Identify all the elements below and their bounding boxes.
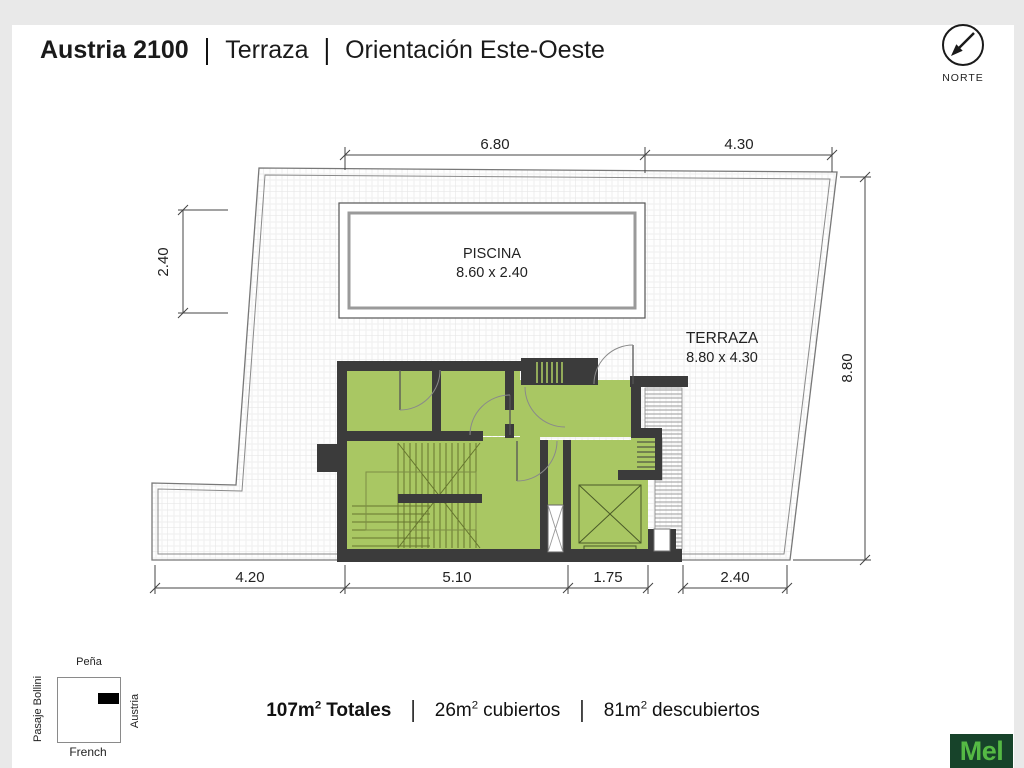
floor-plan-svg: PISCINA 8.60 x 2.40 <box>0 0 1024 768</box>
rear-door <box>654 529 670 551</box>
dim-top-2: 4.30 <box>724 136 753 153</box>
dim-right: 8.80 <box>839 353 856 382</box>
street-austria: Austria <box>129 694 141 728</box>
stair-landing-bar <box>398 494 482 503</box>
floorplan-rooms <box>347 366 648 552</box>
dim-bottom-2: 5.10 <box>442 569 471 586</box>
shaft <box>548 505 563 552</box>
summary-separator: | <box>411 698 416 724</box>
area-summary: 107m2Totales | 26m2cubiertos | 81m2descu… <box>12 700 1014 722</box>
north-indicator: NORTE <box>942 25 984 84</box>
street-pasaje-bollini: Pasaje Bollini <box>32 676 44 742</box>
street-pena: Peña <box>57 656 121 668</box>
property-marker <box>98 693 119 704</box>
terrace-size-label: 8.80 x 4.30 <box>686 350 758 366</box>
deck-steps <box>637 438 655 470</box>
dim-bottom-4: 2.40 <box>720 569 749 586</box>
dim-top-1: 6.80 <box>480 136 509 153</box>
brand-logo-text: Mel <box>960 734 1004 768</box>
summary-separator: | <box>580 698 585 724</box>
brand-logo: Mel <box>950 734 1013 768</box>
summary-uncovered: 81m2descubiertos <box>604 700 760 721</box>
street-french: French <box>53 745 123 759</box>
city-block <box>57 677 121 743</box>
north-label: NORTE <box>942 72 984 84</box>
dim-bottom-1: 4.20 <box>235 569 264 586</box>
pool: PISCINA 8.60 x 2.40 <box>339 203 645 318</box>
summary-total: 107m2Totales <box>266 700 391 721</box>
terrace-label: TERRAZA <box>686 330 759 347</box>
dim-left: 2.40 <box>155 247 172 276</box>
summary-covered: 26m2cubiertos <box>435 700 560 721</box>
dim-bottom-3: 1.75 <box>593 569 622 586</box>
pool-size-label: 8.60 x 2.40 <box>456 265 528 281</box>
pool-label: PISCINA <box>463 246 521 262</box>
